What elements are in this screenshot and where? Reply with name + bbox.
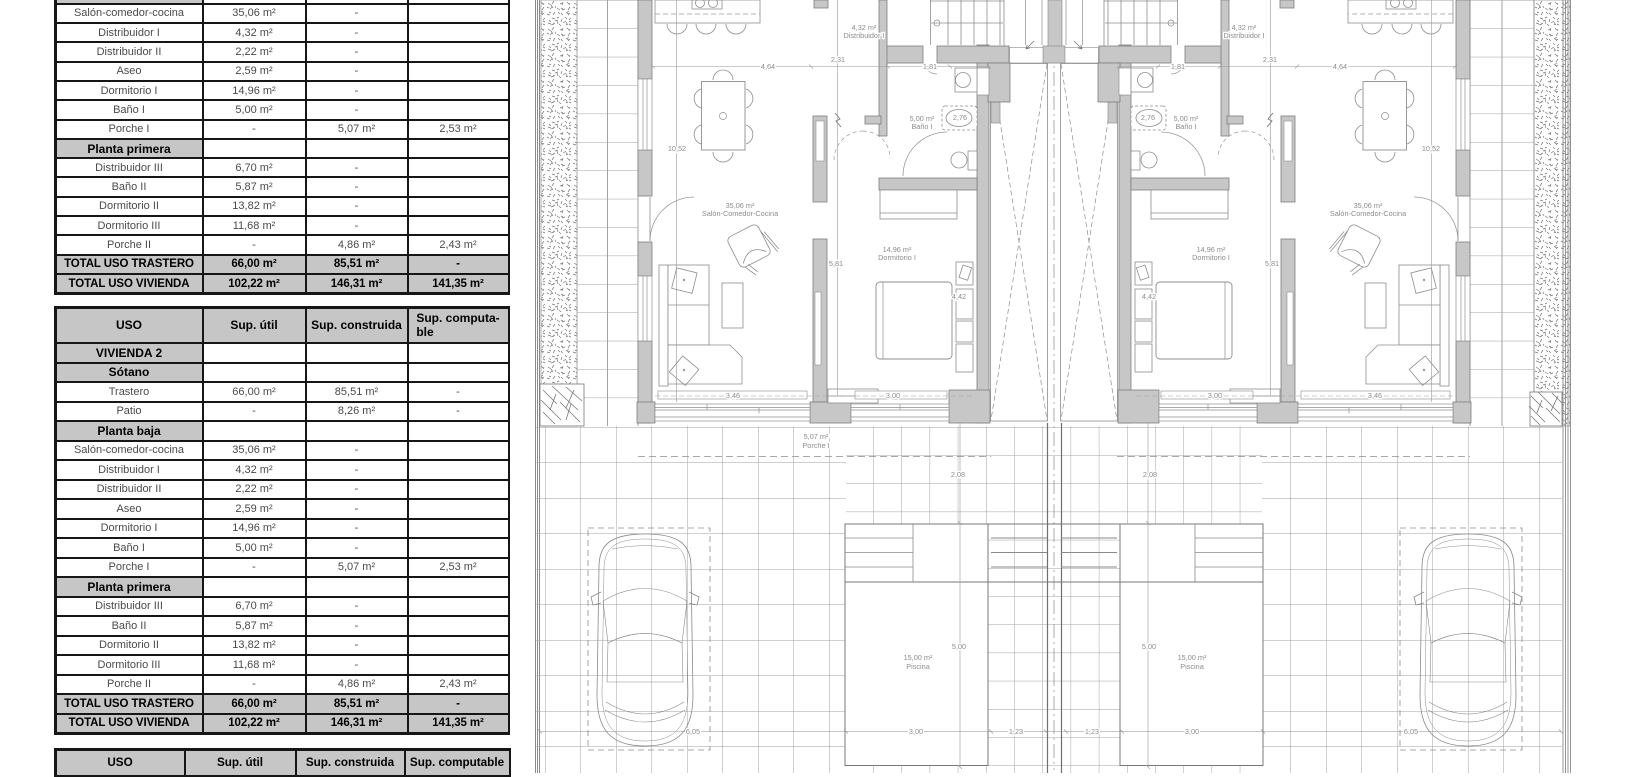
- svg-text:4,42: 4,42: [1142, 292, 1156, 301]
- svg-text:15,00 m²: 15,00 m²: [904, 653, 933, 662]
- svg-text:15,00 m²: 15,00 m²: [1178, 653, 1207, 662]
- svg-text:4,42: 4,42: [952, 292, 966, 301]
- svg-text:3,00: 3,00: [1185, 727, 1199, 736]
- svg-text:10,52: 10,52: [1422, 144, 1440, 153]
- svg-text:1,81: 1,81: [923, 62, 937, 71]
- svg-text:5,81: 5,81: [829, 259, 843, 268]
- svg-text:2,08: 2,08: [1143, 470, 1157, 479]
- svg-text:5,00: 5,00: [952, 642, 966, 651]
- svg-text:2,08: 2,08: [951, 470, 965, 479]
- svg-text:1,81: 1,81: [1171, 62, 1185, 71]
- svg-text:5,00: 5,00: [1142, 642, 1156, 651]
- svg-text:Baño I: Baño I: [1175, 122, 1196, 131]
- svg-text:Piscina: Piscina: [1180, 662, 1204, 671]
- svg-text:Salón-Comedor-Cocina: Salón-Comedor-Cocina: [1330, 209, 1407, 218]
- svg-text:10,52: 10,52: [668, 144, 686, 153]
- svg-text:Piscina: Piscina: [906, 662, 930, 671]
- svg-text:2,76: 2,76: [1141, 113, 1155, 122]
- svg-text:6,05: 6,05: [1404, 727, 1418, 736]
- svg-text:1,23: 1,23: [1085, 727, 1099, 736]
- svg-text:5,07 m²: 5,07 m²: [804, 432, 829, 441]
- svg-text:3,46: 3,46: [726, 391, 740, 400]
- svg-text:5,81: 5,81: [1265, 259, 1279, 268]
- svg-text:3,00: 3,00: [909, 727, 923, 736]
- svg-text:6,05: 6,05: [686, 727, 700, 736]
- svg-text:Distribuidor I: Distribuidor I: [1224, 31, 1265, 40]
- svg-text:3,00: 3,00: [886, 391, 900, 400]
- svg-text:Distribuidor I: Distribuidor I: [844, 31, 885, 40]
- svg-text:2,76: 2,76: [953, 113, 967, 122]
- svg-text:3,00: 3,00: [1208, 391, 1222, 400]
- svg-text:Porche I: Porche I: [802, 441, 829, 450]
- svg-text:2,31: 2,31: [831, 55, 845, 64]
- svg-text:4,64: 4,64: [1333, 62, 1347, 71]
- svg-text:Salón-Comedor-Cocina: Salón-Comedor-Cocina: [702, 209, 779, 218]
- svg-text:2,31: 2,31: [1263, 55, 1277, 64]
- svg-text:3,46: 3,46: [1368, 391, 1382, 400]
- svg-text:4,64: 4,64: [761, 62, 775, 71]
- svg-text:1,23: 1,23: [1009, 727, 1023, 736]
- svg-text:Baño I: Baño I: [911, 122, 932, 131]
- svg-text:Dormitorio I: Dormitorio I: [878, 253, 916, 262]
- svg-text:Dormitorio I: Dormitorio I: [1192, 253, 1230, 262]
